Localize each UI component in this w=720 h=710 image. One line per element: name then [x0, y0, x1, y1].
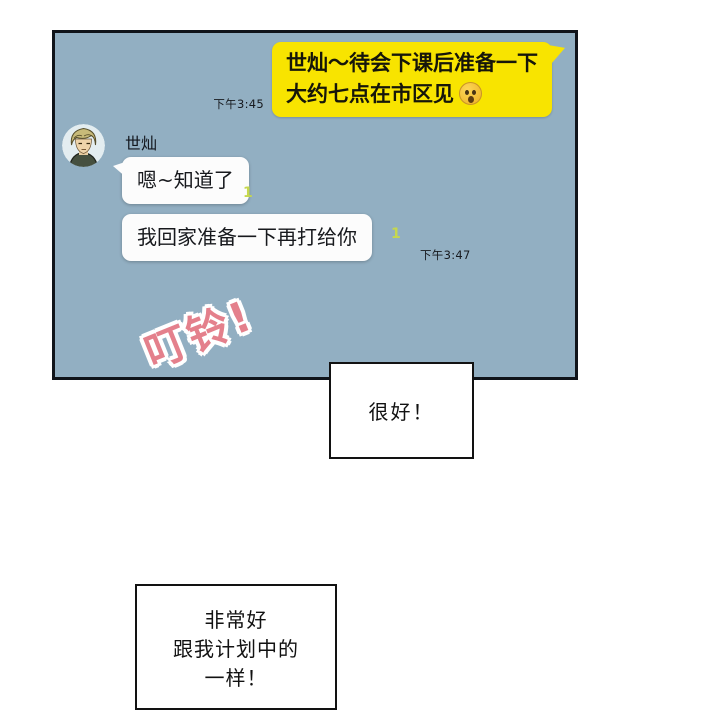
contact-name: 世灿	[125, 130, 157, 154]
narration-box: 很好！	[329, 362, 474, 459]
narration-line: 非常好	[137, 606, 335, 635]
incoming-message-text: 嗯~知道了	[137, 168, 234, 192]
unread-count-badge: 1	[243, 185, 253, 201]
incoming-message-text: 我回家准备一下再打给你	[137, 225, 357, 249]
outgoing-message-bubble: 世灿～待会下课后准备一下 大约七点在市区见	[272, 42, 552, 117]
narration-box: 非常好 跟我计划中的 一样！	[135, 584, 337, 710]
emoji-mouth	[468, 96, 474, 103]
outgoing-message-line: 世灿～待会下课后准备一下	[286, 48, 538, 79]
timestamp-incoming: 下午3:47	[420, 247, 471, 263]
emoji-eye	[472, 90, 476, 95]
narration-text: 很好！	[369, 396, 435, 425]
outgoing-message-line: 大约七点在市区见	[286, 79, 538, 110]
surprised-emoji-icon	[459, 82, 482, 105]
avatar-illustration	[62, 124, 105, 167]
incoming-message-bubble: 我回家准备一下再打给你	[122, 214, 372, 261]
outgoing-message-text: 大约七点在市区见	[286, 82, 454, 106]
unread-count-badge: 1	[391, 226, 401, 242]
incoming-message-bubble: 嗯~知道了	[122, 157, 249, 204]
avatar	[62, 124, 105, 167]
narration-line: 一样！	[137, 664, 335, 693]
narration-line: 跟我计划中的	[137, 635, 335, 664]
timestamp-outgoing: 下午3:45	[204, 96, 264, 112]
emoji-eye	[465, 90, 469, 95]
